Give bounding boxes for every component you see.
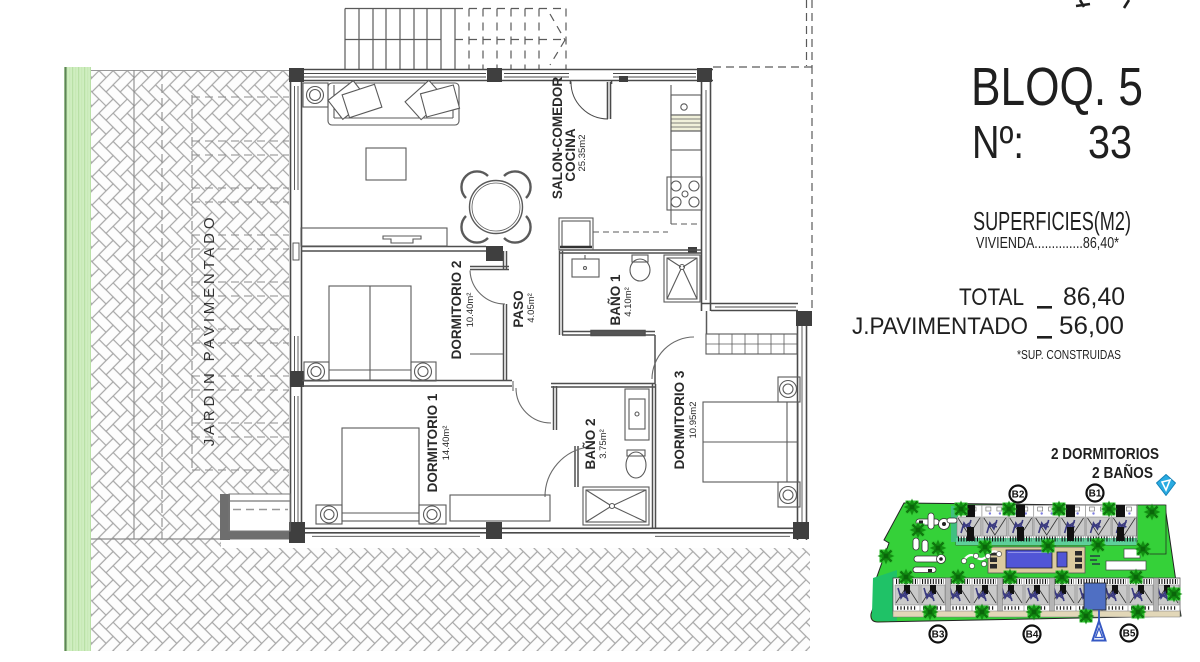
svg-text:2 BAÑOS: 2 BAÑOS — [1092, 462, 1153, 482]
svg-text:Nº:: Nº: — [972, 116, 1024, 168]
svg-text:14.40m²: 14.40m² — [441, 426, 452, 461]
svg-text:DORMITORIO 2: DORMITORIO 2 — [449, 261, 464, 360]
svg-text:BAÑO 1: BAÑO 1 — [608, 274, 623, 325]
svg-text:JARDIN PAVIMENTADO: JARDIN PAVIMENTADO — [201, 214, 218, 447]
svg-text:B2: B2 — [1012, 490, 1025, 501]
svg-text:*SUP. CONSTRUIDAS: *SUP. CONSTRUIDAS — [1017, 348, 1121, 362]
svg-text:B5: B5 — [1123, 629, 1136, 640]
svg-text:TOTAL: TOTAL — [959, 284, 1024, 311]
svg-text:2 DORMITORIOS: 2 DORMITORIOS — [1051, 446, 1159, 463]
svg-text:86,40: 86,40 — [1063, 283, 1125, 311]
svg-text:25.35m2: 25.35m2 — [577, 135, 588, 172]
svg-text:PASO: PASO — [511, 290, 526, 327]
svg-text:SUPERFICIES(M2): SUPERFICIES(M2) — [973, 206, 1131, 236]
svg-text:B1: B1 — [1089, 489, 1102, 500]
svg-text:3.75m²: 3.75m² — [598, 429, 609, 459]
svg-text:4.05m²: 4.05m² — [526, 293, 537, 323]
svg-text:J.PAVIMENTADO: J.PAVIMENTADO — [852, 313, 1028, 340]
svg-text:33: 33 — [1088, 116, 1132, 168]
svg-text:4.10m²: 4.10m² — [623, 287, 634, 317]
svg-text:10.40m²: 10.40m² — [465, 293, 476, 328]
svg-text:VIVIENDA..............86,40*: VIVIENDA..............86,40* — [976, 235, 1119, 252]
svg-text:B3: B3 — [932, 630, 945, 641]
svg-text:56,00: 56,00 — [1059, 312, 1124, 340]
svg-text:BAÑO 2: BAÑO 2 — [583, 418, 598, 469]
svg-text:COCINA: COCINA — [563, 128, 578, 181]
svg-text:DORMITORIO 1: DORMITORIO 1 — [425, 393, 440, 492]
svg-text:DORMITORIO 3: DORMITORIO 3 — [672, 370, 687, 469]
svg-text:10.95m2: 10.95m2 — [688, 402, 699, 439]
svg-text:B4: B4 — [1026, 630, 1039, 641]
svg-text:BLOQ. 5: BLOQ. 5 — [971, 57, 1143, 117]
